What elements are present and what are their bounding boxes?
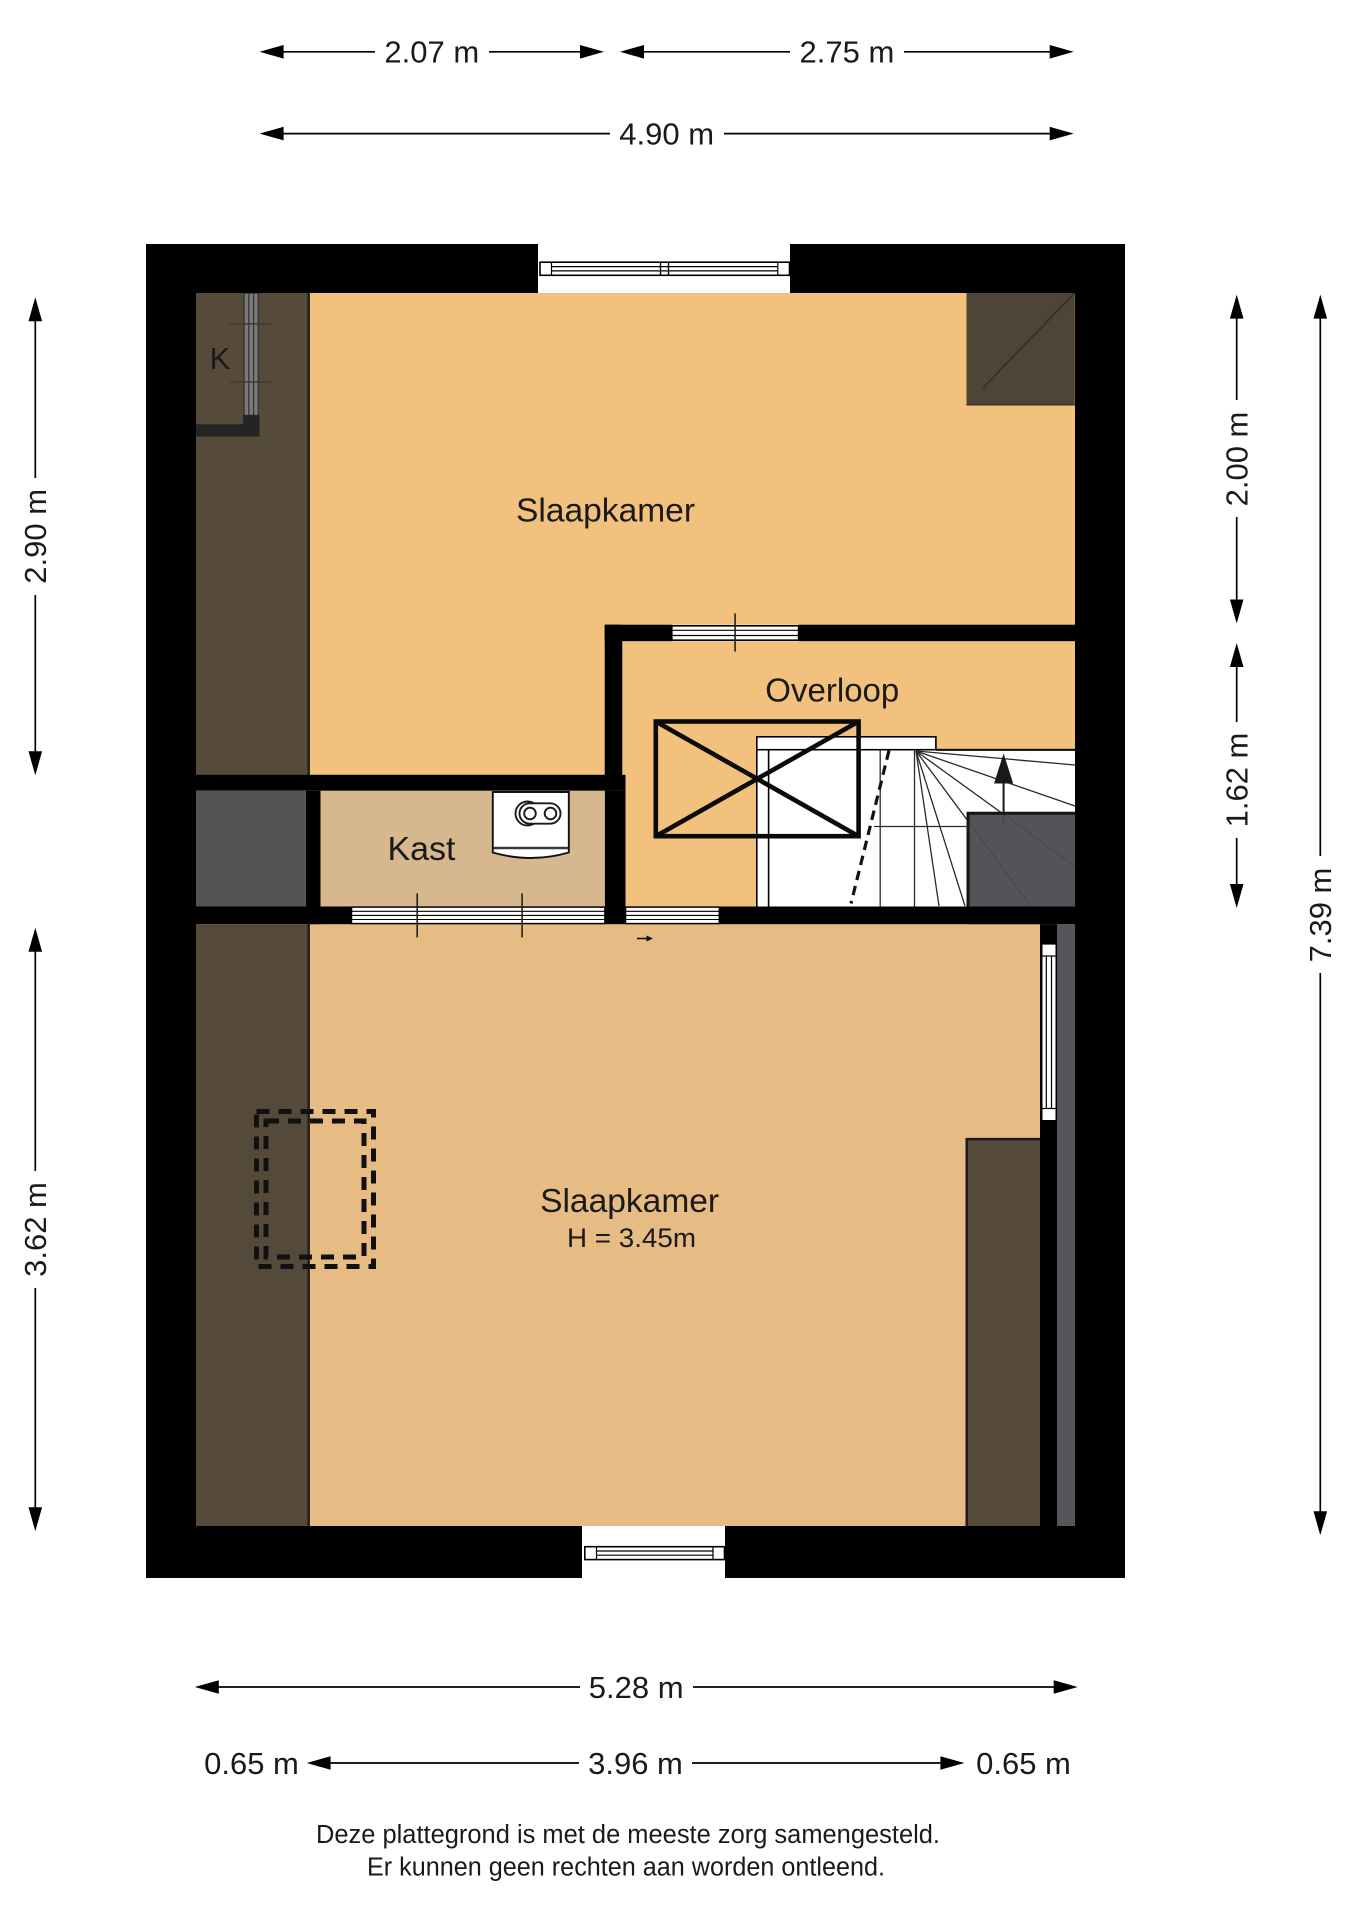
svg-text:3.62 m: 3.62 m bbox=[18, 1182, 53, 1277]
svg-text:K: K bbox=[210, 341, 231, 376]
svg-text:2.07 m: 2.07 m bbox=[384, 35, 479, 70]
svg-text:0.65 m: 0.65 m bbox=[976, 1746, 1071, 1781]
svg-text:3.96 m: 3.96 m bbox=[588, 1746, 683, 1781]
svg-text:H = 3.45m: H = 3.45m bbox=[567, 1223, 696, 1253]
svg-text:2.90 m: 2.90 m bbox=[18, 489, 53, 584]
svg-text:Overloop: Overloop bbox=[765, 672, 899, 709]
svg-text:2.00 m: 2.00 m bbox=[1220, 412, 1255, 507]
svg-text:Kast: Kast bbox=[388, 830, 456, 867]
svg-text:Er kunnen geen rechten aan wor: Er kunnen geen rechten aan worden ontlee… bbox=[367, 1854, 885, 1882]
svg-text:4.90 m: 4.90 m bbox=[619, 116, 714, 151]
svg-text:5.28 m: 5.28 m bbox=[589, 1670, 684, 1705]
svg-text:Deze plattegrond is met de mee: Deze plattegrond is met de meeste zorg s… bbox=[316, 1821, 940, 1849]
svg-text:Slaapkamer: Slaapkamer bbox=[540, 1182, 719, 1219]
svg-text:1.62 m: 1.62 m bbox=[1220, 733, 1255, 828]
svg-text:2.75 m: 2.75 m bbox=[800, 35, 895, 70]
svg-text:Slaapkamer: Slaapkamer bbox=[516, 492, 695, 529]
svg-text:7.39 m: 7.39 m bbox=[1303, 868, 1338, 963]
svg-text:0.65 m: 0.65 m bbox=[204, 1746, 299, 1781]
